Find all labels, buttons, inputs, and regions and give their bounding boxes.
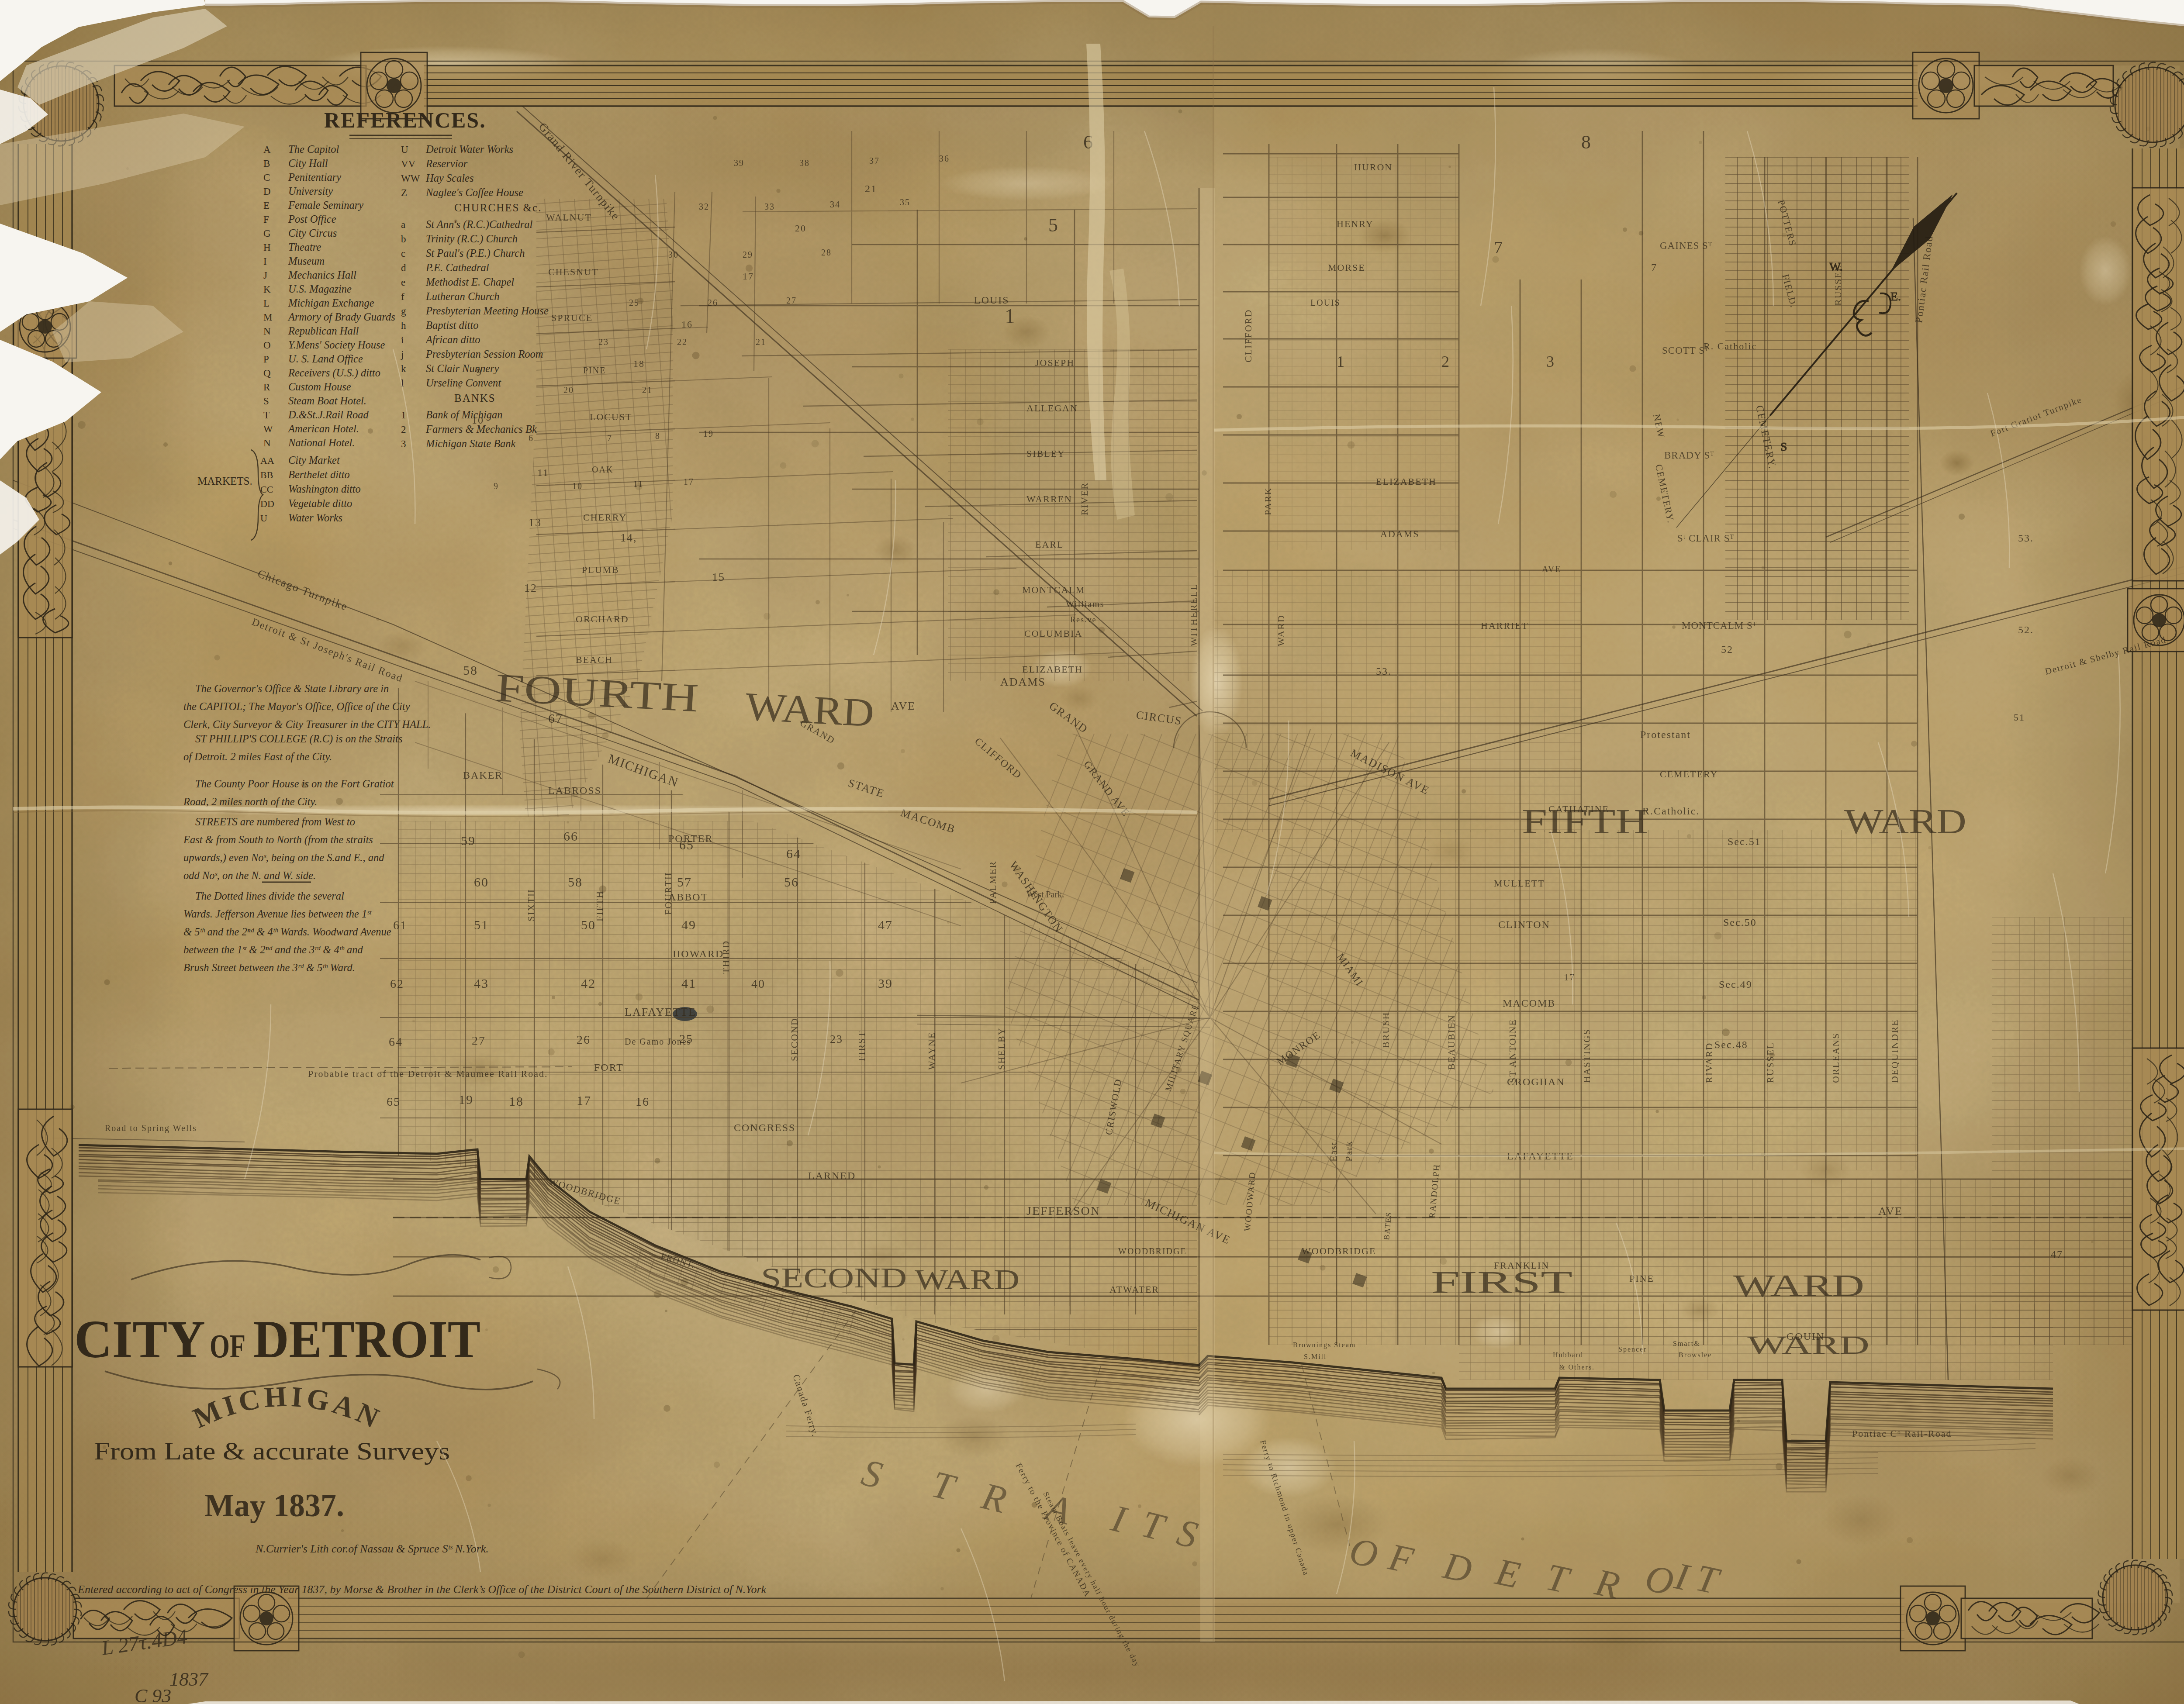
svg-text:Res.ve: Res.ve: [1070, 615, 1097, 624]
svg-text:D: D: [263, 186, 271, 197]
svg-text:ADAMS: ADAMS: [1000, 676, 1046, 688]
svg-text:Water Works: Water Works: [288, 512, 342, 524]
svg-text:66: 66: [563, 829, 578, 843]
svg-text:SIXTH: SIXTH: [525, 889, 536, 921]
svg-text:Trinity (R.C.) Church: Trinity (R.C.) Church: [426, 233, 518, 245]
svg-text:W: W: [263, 424, 273, 435]
svg-text:a: a: [401, 219, 405, 230]
svg-text:PARK: PARK: [1262, 487, 1273, 515]
svg-text:BANKS: BANKS: [454, 392, 496, 404]
svg-text:j: j: [401, 349, 404, 360]
svg-text:3: 3: [1546, 353, 1555, 370]
svg-text:AVE: AVE: [891, 700, 916, 712]
svg-text:58: 58: [568, 875, 583, 889]
svg-text:Smart&: Smart&: [1673, 1340, 1700, 1347]
svg-text:Sec.48: Sec.48: [1714, 1039, 1748, 1050]
svg-text:ELIZABETH: ELIZABETH: [1376, 476, 1437, 487]
svg-text:& 5ᵗʰ and the 2ⁿᵈ & 4ᵗʰ Wards.: & 5ᵗʰ and the 2ⁿᵈ & 4ᵗʰ Wards. Woodward …: [183, 926, 391, 938]
svg-text:HARRIET: HARRIET: [1481, 620, 1528, 631]
svg-text:39: 39: [878, 976, 893, 990]
svg-text:Wards. Jefferson Avenue lies b: Wards. Jefferson Avenue lies between the…: [183, 908, 372, 920]
svg-text:41: 41: [681, 976, 696, 990]
svg-text:39: 39: [734, 158, 744, 168]
svg-text:PALMER: PALMER: [987, 861, 998, 904]
svg-text:Mechanics Hall: Mechanics Hall: [288, 269, 356, 281]
svg-text:29: 29: [743, 250, 753, 259]
svg-text:8: 8: [655, 431, 660, 441]
svg-text:Republican Hall: Republican Hall: [288, 325, 359, 337]
svg-text:ABBOT: ABBOT: [668, 891, 708, 903]
svg-text:BRUSH: BRUSH: [1380, 1012, 1391, 1048]
svg-text:65: 65: [679, 838, 694, 852]
svg-text:N.Currier's Lith cor.of Nassau: N.Currier's Lith cor.of Nassau & Spruce …: [255, 1542, 489, 1555]
svg-text:GOUIN: GOUIN: [1787, 1331, 1825, 1342]
svg-text:1: 1: [401, 410, 406, 421]
svg-text:I: I: [263, 256, 267, 267]
svg-text:Theatre: Theatre: [288, 241, 321, 253]
svg-text:51: 51: [2014, 712, 2025, 723]
svg-text:1837: 1837: [169, 1669, 209, 1690]
svg-text:SECOND: SECOND: [789, 1018, 800, 1061]
svg-text:10: 10: [472, 414, 484, 426]
svg-text:University: University: [288, 185, 333, 197]
svg-text:10: 10: [572, 481, 583, 491]
svg-text:CLIFFORD: CLIFFORD: [1243, 309, 1254, 362]
svg-text:Q: Q: [263, 368, 271, 379]
svg-text:21: 21: [642, 385, 653, 395]
svg-text:16: 16: [636, 1095, 650, 1108]
svg-text:RIVER: RIVER: [1079, 482, 1090, 515]
svg-text:7: 7: [1651, 262, 1657, 273]
svg-text:ATWATER: ATWATER: [1109, 1284, 1159, 1295]
svg-text:CHURCHES &c.: CHURCHES &c.: [454, 202, 542, 214]
svg-text:May 1837.: May 1837.: [204, 1487, 344, 1523]
svg-text:City Circus: City Circus: [288, 227, 337, 239]
svg-text:50: 50: [581, 918, 596, 932]
svg-text:e: e: [401, 277, 405, 288]
svg-text:7: 7: [1494, 238, 1503, 257]
svg-text:LARNED: LARNED: [808, 1170, 856, 1181]
svg-text:Michigan State Bank: Michigan State Bank: [425, 438, 516, 449]
svg-text:16: 16: [681, 319, 693, 330]
svg-text:Sec.50: Sec.50: [1723, 917, 1757, 928]
svg-text:17: 17: [577, 1093, 591, 1107]
svg-text:St Ann's (R.C.)Cathedral: St Ann's (R.C.)Cathedral: [426, 218, 533, 231]
svg-text:34: 34: [830, 200, 840, 209]
svg-text:11: 11: [537, 467, 549, 478]
svg-text:FRANKLIN: FRANKLIN: [1494, 1260, 1549, 1271]
svg-text:the CAPITOL; The Mayor's Offi: the CAPITOL; The Mayor's Office, Office …: [183, 700, 410, 712]
svg-text:56: 56: [784, 875, 799, 889]
svg-text:WARD: WARD: [1733, 1268, 1864, 1303]
svg-text:K: K: [263, 284, 271, 295]
svg-text:47: 47: [878, 918, 893, 932]
svg-text:12: 12: [524, 582, 537, 594]
svg-text:D.&St.J.Rail Road: D.&St.J.Rail Road: [288, 409, 369, 421]
svg-text:17: 17: [743, 271, 754, 282]
svg-text:7: 7: [607, 433, 612, 443]
svg-text:Michigan Exchange: Michigan Exchange: [288, 297, 374, 309]
svg-text:CONGRESS: CONGRESS: [734, 1122, 795, 1133]
svg-text:A: A: [263, 144, 271, 155]
svg-text:East: East: [1328, 1142, 1339, 1162]
svg-text:L: L: [263, 298, 270, 309]
svg-text:21: 21: [865, 183, 877, 194]
svg-text:64: 64: [389, 1035, 403, 1049]
svg-text:U. S. Land Office: U. S. Land Office: [288, 353, 363, 365]
svg-text:Museum: Museum: [288, 255, 325, 267]
svg-text:60: 60: [474, 875, 489, 889]
svg-text:THIRD: THIRD: [720, 940, 731, 974]
svg-text:E: E: [263, 200, 270, 211]
svg-text:F: F: [263, 214, 270, 225]
svg-text:58: 58: [463, 663, 478, 677]
svg-text:Presbyterian Meeting House: Presbyterian Meeting House: [425, 305, 549, 317]
svg-text:52.: 52.: [2018, 624, 2034, 635]
svg-text:Washington ditto: Washington ditto: [288, 483, 361, 495]
svg-text:19: 19: [459, 1092, 473, 1107]
svg-text:HOWARD: HOWARD: [673, 948, 724, 959]
svg-text:ORLEANS: ORLEANS: [1830, 1033, 1841, 1083]
svg-text:U: U: [260, 513, 267, 524]
svg-text:WARD: WARD: [915, 1263, 1019, 1295]
svg-text:P.E. Cathedral: P.E. Cathedral: [425, 262, 489, 273]
svg-text:23: 23: [598, 337, 609, 347]
svg-text:Urseline Convent: Urseline Convent: [426, 377, 501, 389]
svg-text:SCOTT Sᵀ: SCOTT Sᵀ: [1662, 345, 1709, 356]
svg-text:Williams: Williams: [1066, 599, 1105, 609]
svg-text:From Late & accurate Surveys: From Late & accurate Surveys: [94, 1438, 450, 1465]
svg-text:EARL: EARL: [1035, 539, 1064, 550]
svg-text:37: 37: [869, 156, 880, 166]
svg-text:MARKETS.: MARKETS.: [197, 475, 252, 487]
svg-text:odd Noˢ, on the N. and W. side: odd Noˢ, on the N. and W. side.: [183, 869, 316, 881]
svg-text:City Hall: City Hall: [288, 157, 328, 169]
svg-text:Presbyterian Session Room: Presbyterian Session Room: [425, 348, 543, 360]
svg-text:ORCHARD: ORCHARD: [576, 614, 629, 624]
svg-text:40: 40: [751, 977, 765, 990]
svg-text:Probable tract of the Detroit: Probable tract of the Detroit & Maumee R…: [308, 1068, 548, 1079]
svg-text:Sᵗ CLAIR Sᵀ: Sᵗ CLAIR Sᵀ: [1677, 533, 1734, 544]
svg-text:18: 18: [633, 358, 645, 369]
svg-text:ST PHILLIP'S COLLEGE (R.C) is: ST PHILLIP'S COLLEGE (R.C) is on the Str…: [195, 733, 402, 745]
svg-text:S: S: [263, 396, 270, 407]
svg-text:DEQUINDRE: DEQUINDRE: [1889, 1019, 1900, 1083]
svg-text:36: 36: [939, 154, 950, 163]
svg-text:JOSEPH: JOSEPH: [1035, 357, 1075, 368]
svg-text:MULLETT: MULLETT: [1494, 878, 1545, 889]
svg-text:52: 52: [1721, 644, 1733, 655]
svg-text:33: 33: [764, 202, 775, 211]
svg-text:BB: BB: [260, 469, 273, 480]
svg-text:W.: W.: [1829, 260, 1843, 273]
svg-text:CC: CC: [260, 484, 273, 495]
svg-text:53.: 53.: [1376, 666, 1392, 677]
svg-text:SHELBY: SHELBY: [996, 1027, 1007, 1070]
svg-text:OAK: OAK: [592, 465, 613, 474]
svg-text:32: 32: [699, 202, 709, 211]
svg-text:HURON: HURON: [1354, 162, 1393, 172]
svg-text:22: 22: [677, 337, 688, 347]
svg-text:MONTCALM Sᵀ: MONTCALM Sᵀ: [1682, 620, 1757, 631]
svg-text:& Others.: & Others.: [1559, 1363, 1595, 1371]
svg-text:Brush Street between the 3ʳᵈ &: Brush Street between the 3ʳᵈ & 5ᵗʰ Ward.: [183, 962, 355, 973]
svg-text:between the 1ˢᵗ & 2ⁿᵈ and the: between the 1ˢᵗ & 2ⁿᵈ and the 3ʳᵈ & 4ᵗʰ …: [183, 944, 363, 955]
svg-text:CHERRY: CHERRY: [583, 512, 627, 523]
svg-text:HASTINGS: HASTINGS: [1581, 1028, 1592, 1083]
svg-text:6: 6: [529, 433, 534, 443]
svg-text:19: 19: [703, 429, 714, 438]
svg-text:Lutheran Church: Lutheran Church: [425, 290, 500, 302]
svg-text:Armory of Brady Guards: Armory of Brady Guards: [287, 311, 395, 323]
svg-text:U.S. Magazine: U.S. Magazine: [288, 283, 352, 295]
svg-text:S.Mill: S.Mill: [1304, 1353, 1327, 1360]
svg-text:Sec.51: Sec.51: [1728, 836, 1761, 847]
svg-text:Clerk, City Surveyor & City Tr: Clerk, City Surveyor & City Treasurer in…: [183, 718, 431, 730]
svg-text:Reservior: Reservior: [425, 158, 468, 169]
svg-text:S: S: [1780, 440, 1787, 453]
svg-text:U: U: [401, 144, 408, 155]
svg-text:8: 8: [1581, 131, 1592, 153]
svg-text:MONTCALM: MONTCALM: [1022, 584, 1085, 595]
svg-text:WARD: WARD: [1844, 802, 1966, 841]
svg-text:14,: 14,: [620, 531, 637, 544]
svg-text:WW: WW: [401, 173, 420, 184]
svg-text:CLINTON: CLINTON: [1498, 919, 1550, 930]
svg-text:65: 65: [387, 1095, 401, 1108]
svg-text:LOCUST: LOCUST: [590, 411, 632, 422]
svg-text:The Governor's Office & State: The Governor's Office & State Library ar…: [195, 683, 389, 694]
svg-text:BRADY Sᵀ: BRADY Sᵀ: [1664, 450, 1714, 461]
svg-text:27: 27: [472, 1034, 486, 1047]
svg-text:CEMETERY: CEMETERY: [1660, 769, 1718, 780]
svg-text:RUSSEL: RUSSEL: [1765, 1042, 1776, 1083]
svg-text:P: P: [263, 354, 270, 365]
svg-text:20: 20: [563, 385, 574, 395]
svg-text:COLUMBIA: COLUMBIA: [1024, 628, 1082, 639]
svg-text:B: B: [263, 158, 270, 169]
svg-text:28: 28: [821, 248, 832, 257]
svg-text:R. Catholic: R. Catholic: [1704, 341, 1757, 352]
svg-text:Park: Park: [1343, 1141, 1354, 1162]
svg-text:City Market: City Market: [288, 454, 340, 466]
svg-text:c: c: [401, 248, 405, 259]
svg-text:G: G: [263, 228, 271, 239]
svg-text:SPRUCE: SPRUCE: [551, 312, 593, 323]
svg-text:Naglee's Coffee House: Naglee's Coffee House: [425, 186, 523, 198]
svg-text:47.: 47.: [2051, 1249, 2067, 1260]
svg-text:Female Seminary: Female Seminary: [288, 199, 363, 211]
svg-text:Sec.49: Sec.49: [1719, 979, 1752, 990]
svg-text:Detroit Water Works: Detroit Water Works: [425, 143, 513, 155]
svg-text:Steam Boat Hotel.: Steam Boat Hotel.: [288, 395, 366, 407]
svg-text:WOODBRIDGE: WOODBRIDGE: [1118, 1246, 1187, 1256]
svg-text:21: 21: [756, 337, 766, 347]
svg-text:BAKER: BAKER: [463, 769, 503, 781]
svg-text:2: 2: [1441, 353, 1450, 370]
svg-text:PLUMB: PLUMB: [582, 564, 619, 575]
svg-text:Road, 2 miles north of the Cit: Road, 2 miles north of the City.: [183, 796, 317, 807]
svg-text:1: 1: [1337, 353, 1345, 370]
svg-text:ADAMS: ADAMS: [1380, 528, 1419, 539]
svg-text:Bank of Michigan: Bank of Michigan: [426, 409, 503, 421]
svg-text:DD: DD: [260, 498, 274, 509]
svg-text:VV: VV: [401, 159, 416, 169]
svg-text:Baptist ditto: Baptist ditto: [426, 319, 478, 331]
svg-text:National Hotel.: National Hotel.: [288, 437, 355, 448]
svg-text:FIFTH: FIFTH: [594, 890, 605, 921]
svg-text:H: H: [263, 242, 271, 253]
svg-text:k: k: [401, 363, 406, 374]
svg-text:The Capitol: The Capitol: [288, 143, 339, 155]
svg-text:WARREN: WARREN: [1026, 493, 1072, 504]
svg-text:FORT: FORT: [594, 1062, 624, 1073]
svg-text:Protestant: Protestant: [1640, 729, 1691, 740]
svg-text:St Paul's (P.E.) Church: St Paul's (P.E.) Church: [426, 247, 525, 259]
svg-text:51: 51: [474, 918, 489, 932]
svg-text:17: 17: [684, 477, 694, 486]
svg-text:T: T: [263, 410, 270, 421]
svg-text:13: 13: [529, 516, 542, 529]
svg-text:East & from South to North (fr: East & from South to North (from the str…: [183, 834, 373, 846]
svg-text:CATHATINE: CATHATINE: [1548, 804, 1609, 814]
svg-text:LAFAYETTE: LAFAYETTE: [625, 1006, 696, 1018]
svg-text:SIBLEY: SIBLEY: [1026, 448, 1065, 459]
svg-text:42: 42: [581, 976, 596, 990]
svg-text:The Dotted lines divide the se: The Dotted lines divide the several: [195, 890, 344, 902]
svg-text:b: b: [401, 234, 406, 245]
svg-text:ST ANTOINE: ST ANTOINE: [1507, 1019, 1518, 1083]
svg-text:WITHERELL: WITHERELL: [1188, 583, 1199, 646]
svg-text:Penitentiary: Penitentiary: [288, 171, 341, 183]
svg-text:C: C: [263, 172, 270, 183]
svg-text:23: 23: [830, 1033, 843, 1045]
svg-text:49: 49: [681, 918, 696, 932]
svg-text:18: 18: [509, 1094, 524, 1108]
svg-text:Custom House: Custom House: [288, 381, 351, 393]
svg-text:Road to Spring Wells: Road to Spring Wells: [105, 1123, 197, 1133]
svg-text:3: 3: [401, 438, 406, 449]
svg-text:DETROIT: DETROIT: [253, 1310, 480, 1369]
svg-text:38: 38: [799, 158, 810, 168]
svg-text:AA: AA: [260, 455, 274, 466]
svg-text:MORSE: MORSE: [1328, 262, 1365, 273]
svg-text:Berthelet ditto: Berthelet ditto: [288, 469, 350, 480]
svg-text:26: 26: [708, 298, 718, 307]
svg-text:LOUIS: LOUIS: [1310, 298, 1341, 307]
svg-text:26: 26: [577, 1033, 591, 1046]
svg-text:Browslee: Browslee: [1679, 1351, 1712, 1359]
svg-text:upwards,) even Noˢ, being on t: upwards,) even Noˢ, being on the S.and E…: [183, 852, 384, 864]
svg-text:5: 5: [1048, 214, 1059, 236]
svg-text:Y.Mens' Society House: Y.Mens' Society House: [288, 339, 385, 351]
svg-text:f: f: [401, 291, 404, 302]
svg-text:REFERENCES.: REFERENCES.: [324, 108, 486, 132]
svg-text:STREETS are numbered from West: STREETS are numbered from West to: [195, 816, 355, 828]
svg-text:of Detroit. 2 miles East of th: of Detroit. 2 miles East of the City.: [183, 751, 332, 762]
svg-text:PINE: PINE: [583, 366, 606, 375]
svg-text:GAINES Sᵀ: GAINES Sᵀ: [1660, 240, 1712, 251]
svg-text:R: R: [263, 382, 270, 393]
svg-text:61: 61: [393, 918, 407, 932]
svg-text:g: g: [401, 306, 406, 317]
svg-text:WARD: WARD: [1275, 614, 1286, 646]
svg-text:RIVARD: RIVARD: [1704, 1042, 1714, 1083]
svg-text:59: 59: [461, 833, 476, 848]
svg-text:West Park.: West Park.: [1026, 890, 1064, 899]
svg-text:Brownings Steam: Brownings Steam: [1293, 1341, 1356, 1349]
svg-text:9: 9: [476, 366, 482, 378]
svg-text:The County Poor House is on th: The County Poor House is on the Fort Gra…: [195, 778, 394, 790]
svg-text:35: 35: [900, 197, 910, 207]
svg-text:20: 20: [795, 223, 806, 234]
svg-text:d: d: [401, 262, 406, 273]
svg-text:CHESNUT: CHESNUT: [548, 266, 598, 277]
svg-text:CITY: CITY: [74, 1310, 205, 1369]
svg-text:ELIZABETH: ELIZABETH: [1022, 664, 1083, 675]
svg-text:BEACH: BEACH: [576, 654, 613, 665]
svg-text:2: 2: [401, 424, 406, 435]
svg-text:WAYNE: WAYNE: [926, 1032, 937, 1070]
svg-text:WOODBRIDGE: WOODBRIDGE: [1302, 1245, 1376, 1256]
svg-text:9: 9: [494, 481, 499, 491]
svg-text:67: 67: [548, 711, 563, 725]
svg-text:ALLEGAN: ALLEGAN: [1026, 403, 1078, 414]
svg-text:M: M: [263, 312, 273, 323]
svg-text:17: 17: [1564, 972, 1575, 983]
svg-text:N: N: [263, 326, 271, 337]
svg-text:American Hotel.: American Hotel.: [287, 423, 359, 435]
svg-text:43: 43: [474, 976, 489, 990]
svg-text:FIRST: FIRST: [856, 1031, 867, 1061]
svg-text:AVE: AVE: [1878, 1205, 1903, 1218]
svg-text:Methodist E. Chapel: Methodist E. Chapel: [425, 276, 514, 288]
svg-text:1: 1: [1005, 304, 1016, 328]
svg-text:De Gamo Jones: De Gamo Jones: [625, 1037, 691, 1046]
svg-text:Z: Z: [401, 187, 407, 198]
svg-text:WALNUT: WALNUT: [546, 212, 592, 223]
svg-text:64: 64: [786, 846, 801, 861]
svg-text:h: h: [401, 320, 406, 331]
svg-text:African ditto: African ditto: [425, 334, 480, 345]
svg-text:O: O: [263, 340, 271, 351]
svg-text:Hay Scales: Hay Scales: [425, 172, 474, 184]
svg-text:SECOND: SECOND: [761, 1262, 907, 1294]
svg-text:St Clair Nunnery: St Clair Nunnery: [426, 362, 499, 374]
svg-text:Pontiac Cᵒ Rail-Road: Pontiac Cᵒ Rail-Road: [1852, 1428, 1952, 1439]
svg-text:Post Office: Post Office: [288, 213, 336, 225]
svg-text:OF: OF: [210, 1328, 245, 1364]
svg-text:57: 57: [677, 875, 692, 889]
svg-text:30: 30: [668, 250, 679, 259]
svg-text:Vegetable ditto: Vegetable ditto: [288, 497, 352, 509]
svg-text:E.: E.: [1890, 290, 1901, 303]
svg-text:53.: 53.: [2018, 532, 2034, 544]
svg-text:Receivers (U.S.) ditto: Receivers (U.S.) ditto: [288, 367, 380, 379]
svg-text:11: 11: [633, 479, 643, 489]
svg-text:LOUIS: LOUIS: [974, 294, 1009, 306]
svg-text:N: N: [263, 438, 271, 448]
svg-text:AVE: AVE: [1542, 564, 1562, 574]
svg-text:JEFFERSON: JEFFERSON: [1026, 1204, 1100, 1218]
svg-text:25: 25: [629, 298, 639, 307]
svg-text:27: 27: [786, 296, 797, 305]
svg-text:J: J: [263, 270, 268, 281]
svg-text:Hubbard: Hubbard: [1553, 1351, 1583, 1359]
svg-text:MACOMB: MACOMB: [1503, 997, 1555, 1009]
svg-text:R.Catholic.: R.Catholic.: [1642, 805, 1700, 817]
svg-text:BEAUBIEN: BEAUBIEN: [1446, 1014, 1457, 1070]
